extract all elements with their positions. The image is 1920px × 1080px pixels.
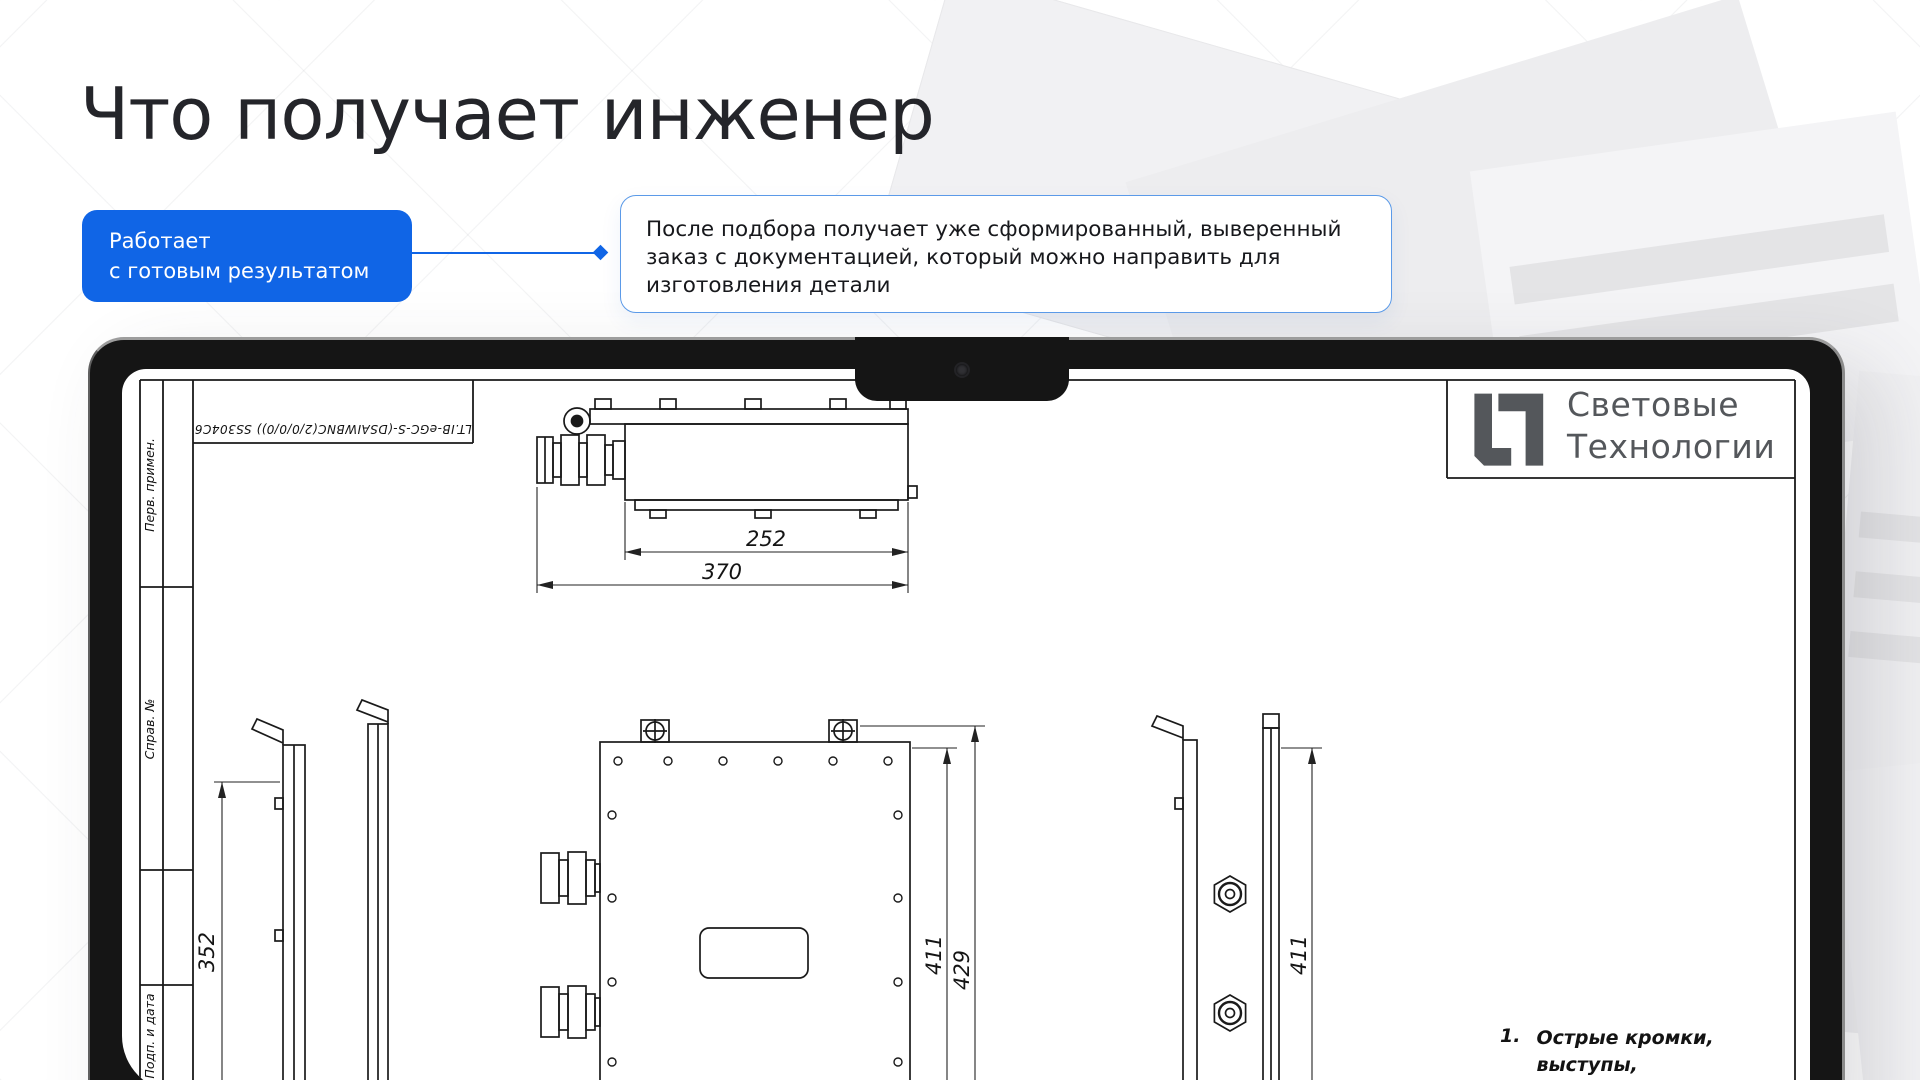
front-view xyxy=(541,719,910,1080)
description-callout: После подбора получает уже сформированны… xyxy=(620,195,1392,313)
paper-line-decoration xyxy=(1509,214,1889,304)
callout-line: После подбора получает уже сформированны… xyxy=(646,216,1365,244)
margin-label-perv-primen: Перв. примен. xyxy=(142,410,160,560)
stamp-code: LT.IB-eGC-S-(DSAIWBNC(2/0/0/0)) SS304C6 xyxy=(193,418,473,436)
hex-bolt xyxy=(1214,876,1245,912)
paper-line-decoration xyxy=(1854,571,1920,615)
callout-line: заказ с документацией, который можно нап… xyxy=(646,244,1365,272)
right-view xyxy=(1152,714,1279,1080)
paper-line-decoration xyxy=(1849,631,1920,675)
connector-line xyxy=(410,252,600,254)
right-view-dimension xyxy=(1281,748,1322,1080)
badge-line: с готовым результатом xyxy=(109,256,412,286)
laptop-screen: 252 370 352 xyxy=(122,369,1810,1080)
hex-bolt xyxy=(1214,995,1245,1031)
top-view xyxy=(537,399,917,518)
logo-text-line1: Световые xyxy=(1567,384,1775,426)
dimension-252: 252 xyxy=(746,527,786,551)
cable-gland xyxy=(541,852,600,904)
margin-label-podp-data: Подп. и дата xyxy=(142,961,160,1080)
svetovye-tekhnologii-logo-icon xyxy=(1467,392,1549,472)
dimension-411: 411 xyxy=(922,935,946,975)
front-view-dimensions xyxy=(860,726,985,1080)
note-line: Острые кромки, выступы, xyxy=(1536,1025,1810,1079)
dimension-411-right: 411 xyxy=(1287,935,1311,975)
drawing-notes: 1. Острые кромки, выступы, заусенцы не д… xyxy=(1500,1025,1810,1080)
badge-line: Работает xyxy=(109,226,412,256)
margin-label-sprav-no: Справ. № xyxy=(142,654,160,804)
connector-diamond-icon xyxy=(593,245,609,261)
dimension-370: 370 xyxy=(702,560,742,584)
paper-line-decoration xyxy=(1859,512,1920,556)
camera-icon xyxy=(956,364,968,376)
left-view xyxy=(252,700,388,1080)
laptop-camera-notch xyxy=(855,337,1069,401)
callout-line: изготовления детали xyxy=(646,272,1365,300)
note-number: 1. xyxy=(1500,1025,1520,1080)
result-badge-button[interactable]: Работает с готовым результатом xyxy=(82,210,412,302)
page-title: Что получает инженер xyxy=(80,72,934,156)
dimension-352: 352 xyxy=(195,932,219,972)
left-view-dimension xyxy=(214,782,280,1080)
dimension-429: 429 xyxy=(950,950,974,990)
logo-block: Световые Технологии xyxy=(1447,380,1807,476)
laptop-mockup: 252 370 352 xyxy=(88,337,1845,1080)
logo-text-line2: Технологии xyxy=(1567,426,1775,468)
cable-gland xyxy=(541,986,600,1038)
